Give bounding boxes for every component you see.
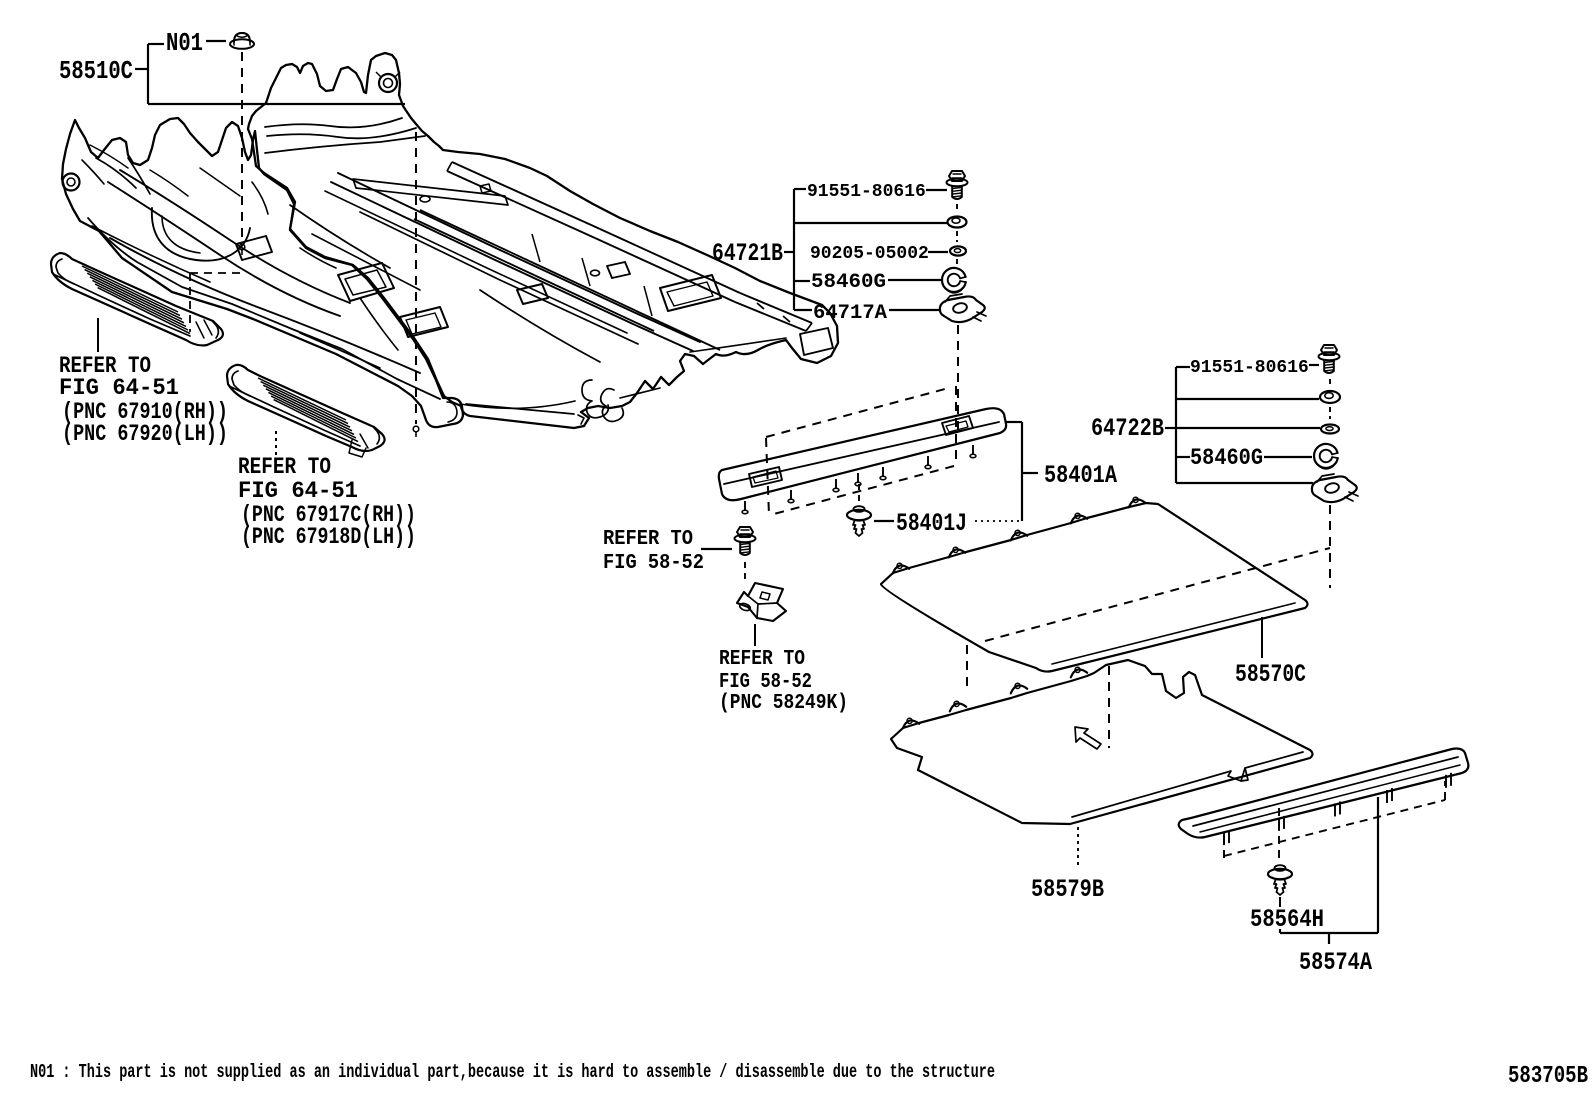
svg-text:583705B: 583705B bbox=[1508, 1063, 1588, 1090]
svg-text:58574A: 58574A bbox=[1299, 948, 1372, 977]
svg-text:91551-80616: 91551-80616 bbox=[807, 182, 926, 202]
svg-text:FIG 58-52: FIG 58-52 bbox=[719, 671, 812, 694]
svg-text:64721B: 64721B bbox=[712, 239, 783, 268]
svg-text:90205-05002: 90205-05002 bbox=[810, 244, 929, 264]
svg-text:REFER TO: REFER TO bbox=[603, 528, 693, 551]
svg-text:64717A: 64717A bbox=[813, 302, 887, 325]
svg-text:58460G: 58460G bbox=[811, 271, 886, 294]
svg-text:58579B: 58579B bbox=[1031, 875, 1104, 904]
svg-text:FIG 64-51: FIG 64-51 bbox=[59, 375, 179, 401]
svg-text:FIG 64-51: FIG 64-51 bbox=[238, 478, 358, 504]
svg-text:58460G: 58460G bbox=[1190, 445, 1263, 471]
svg-text:(PNC 67920(LH)): (PNC 67920(LH)) bbox=[62, 421, 228, 447]
svg-text:REFER TO: REFER TO bbox=[238, 454, 331, 480]
svg-text:FIG 58-52: FIG 58-52 bbox=[603, 552, 704, 575]
svg-text:58564H: 58564H bbox=[1250, 905, 1324, 934]
svg-text:58401J: 58401J bbox=[896, 509, 967, 538]
svg-text:REFER TO: REFER TO bbox=[719, 648, 805, 671]
svg-text:(PNC 58249K): (PNC 58249K) bbox=[719, 692, 848, 715]
svg-text:(PNC 67918D(LH)): (PNC 67918D(LH)) bbox=[241, 524, 416, 550]
svg-text:64722B: 64722B bbox=[1091, 414, 1164, 443]
svg-text:58570C: 58570C bbox=[1235, 660, 1306, 689]
svg-text:91551-80616: 91551-80616 bbox=[1190, 358, 1309, 378]
svg-text:58510C: 58510C bbox=[59, 56, 133, 86]
svg-text:58401A: 58401A bbox=[1044, 461, 1117, 490]
svg-text:N01: N01 bbox=[166, 28, 203, 58]
svg-text:N01 : This part is not supplie: N01 : This part is not supplied as an in… bbox=[30, 1061, 995, 1083]
